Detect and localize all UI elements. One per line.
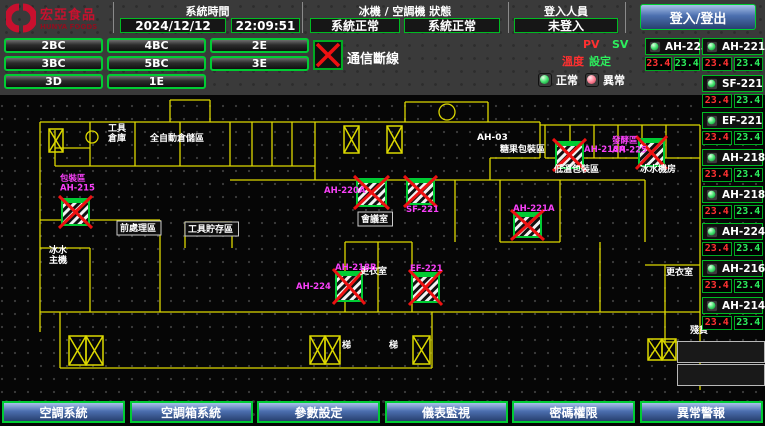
- sv-value: 23.4: [734, 316, 764, 330]
- unit-name: SF-221: [722, 78, 763, 90]
- pv-value: 23.4: [702, 94, 732, 108]
- equipment-tag: AH-220A: [324, 186, 366, 196]
- unit-values-AH-214: 23.423.4: [702, 316, 763, 330]
- sv-value: 23.4: [734, 168, 764, 182]
- sv-value: 23.4: [734, 131, 764, 145]
- unit-status-lamp-icon: [649, 41, 661, 53]
- empty-unit-slot: [677, 364, 765, 386]
- room-label: 冰水機房: [640, 163, 676, 175]
- pv-value: 23.4: [702, 242, 732, 256]
- hmi-screen: 宏亞食品 HUNYA FOODS 系統時間 2024/12/12 22:09:5…: [0, 0, 765, 426]
- footer-button-參數設定[interactable]: 參數設定: [257, 401, 380, 423]
- unit-row-AH-218A[interactable]: AH-218A: [702, 149, 763, 166]
- room-label: 梯: [342, 339, 351, 351]
- unit-row-AH-216[interactable]: AH-216: [702, 260, 763, 277]
- room-label: 更衣室: [666, 266, 693, 278]
- ahu-unit-offline-icon[interactable]: [511, 210, 544, 240]
- room-label: 低溫包裝區: [553, 163, 599, 175]
- unit-row-AH-221A[interactable]: AH-221A: [702, 38, 763, 55]
- unit-values-EF-221: 23.423.4: [702, 131, 763, 145]
- sv-value: 23.4: [734, 57, 764, 71]
- unit-row-AH-218B[interactable]: AH-218B: [702, 186, 763, 203]
- empty-unit-slot: [677, 341, 765, 363]
- ahu-unit-offline-icon[interactable]: [404, 176, 437, 207]
- unit-name: EF-221: [722, 115, 762, 127]
- footer-button-儀表監視[interactable]: 儀表監視: [385, 401, 508, 423]
- ahu-unit-offline-icon[interactable]: [59, 196, 92, 228]
- sv-value: 23.4: [734, 242, 764, 256]
- unit-status-lamp-icon: [706, 115, 718, 127]
- room-label: 會議室: [361, 213, 388, 225]
- unit-name: AH-224: [722, 226, 765, 238]
- room-label: 梯: [389, 339, 398, 351]
- room-label: 前處理區: [120, 222, 156, 234]
- unit-name: AH-216: [722, 263, 765, 275]
- unit-status-lamp-icon: [706, 300, 718, 312]
- unit-name: AH-214: [722, 300, 765, 312]
- equipment-tag: AH-224: [296, 282, 331, 292]
- pv-value: 23.4: [702, 168, 732, 182]
- unit-status-lamp-icon: [706, 263, 718, 275]
- room-label: 工具貯存區: [188, 223, 233, 235]
- footer-button-空調系統[interactable]: 空調系統: [2, 401, 125, 423]
- unit-row-AH-225[interactable]: AH-225: [645, 38, 700, 55]
- unit-row-SF-221[interactable]: SF-221: [702, 75, 763, 92]
- footer-button-空調箱系統[interactable]: 空調箱系統: [130, 401, 253, 423]
- equipment-tag: AH-221A: [513, 204, 555, 214]
- unit-name: AH-221A: [722, 41, 765, 53]
- unit-values-AH-224: 23.423.4: [702, 242, 763, 256]
- pv-value: 23.4: [702, 57, 732, 71]
- unit-values-AH-225: 23.423.4: [645, 57, 700, 71]
- room-label: 糖果包裝區: [500, 143, 545, 155]
- unit-status-lamp-icon: [706, 226, 718, 238]
- footer-button-密碼權限[interactable]: 密碼權限: [512, 401, 635, 423]
- equipment-tag: EF-221: [410, 264, 443, 274]
- pv-value: 23.4: [645, 57, 672, 71]
- sv-value: 23.4: [734, 94, 764, 108]
- room-label: 全自動倉儲區: [149, 132, 204, 144]
- unit-row-AH-224[interactable]: AH-224: [702, 223, 763, 240]
- unit-name: AH-218B: [722, 189, 765, 201]
- unit-status-lamp-icon: [706, 78, 718, 90]
- room-label: 工具倉庫: [107, 123, 126, 144]
- ahu-unit-offline-icon[interactable]: [409, 270, 442, 305]
- unit-values-AH-218B: 23.423.4: [702, 205, 763, 219]
- pv-value: 23.4: [702, 316, 732, 330]
- pv-value: 23.4: [702, 205, 732, 219]
- unit-status-lamp-icon: [706, 189, 718, 201]
- pv-value: 23.4: [702, 279, 732, 293]
- unit-name: AH-218A: [722, 152, 765, 164]
- pv-value: 23.4: [702, 131, 732, 145]
- unit-status-lamp-icon: [706, 41, 718, 53]
- unit-row-EF-221[interactable]: EF-221: [702, 112, 763, 129]
- unit-values-SF-221: 23.423.4: [702, 94, 763, 108]
- equipment-tag: SF-221: [406, 205, 439, 215]
- footer-button-異常警報[interactable]: 異常警報: [640, 401, 763, 423]
- unit-row-AH-214[interactable]: AH-214: [702, 297, 763, 314]
- unit-values-AH-218A: 23.423.4: [702, 168, 763, 182]
- unit-values-AH-216: 23.423.4: [702, 279, 763, 293]
- unit-status-lamp-icon: [706, 152, 718, 164]
- sv-value: 23.4: [734, 279, 764, 293]
- room-label: 冰水主機: [49, 244, 68, 266]
- room-label: AH-03: [477, 133, 508, 143]
- sv-value: 23.4: [734, 205, 764, 219]
- sv-value: 23.4: [674, 57, 701, 71]
- equipment-tag: AH-218B: [335, 263, 376, 273]
- unit-values-AH-221A: 23.423.4: [702, 57, 763, 71]
